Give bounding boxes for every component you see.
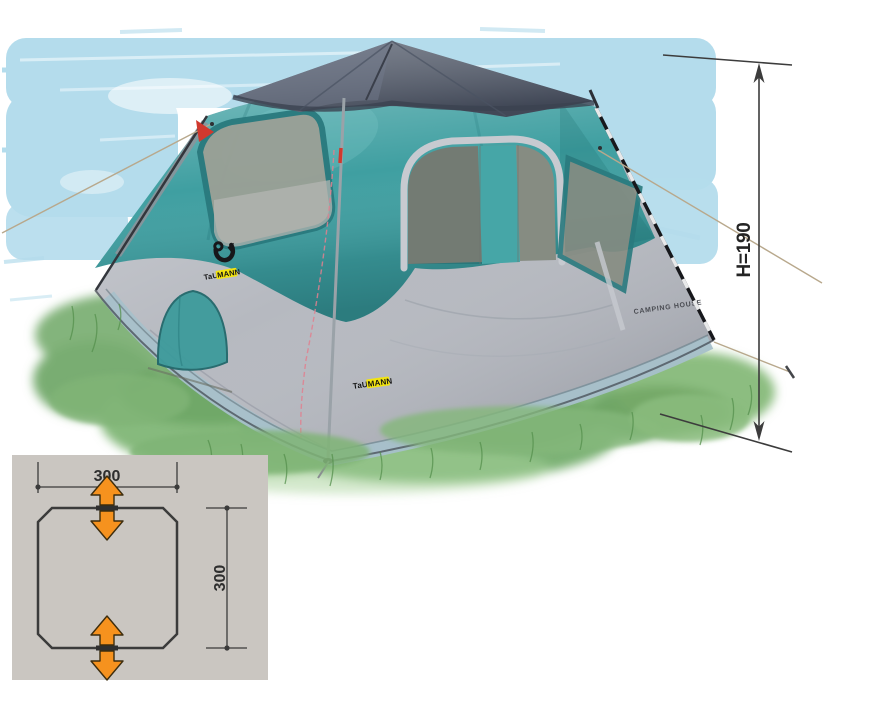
door-flap (478, 145, 520, 264)
height-label: H=190 (734, 222, 755, 277)
door (404, 139, 562, 268)
tent-product-figure: TaU MANN TaU MANN CAMPING HOUSE (0, 0, 875, 702)
depth-label: 300 (212, 565, 229, 592)
left-window (200, 112, 332, 247)
floor-plan: 300 300 (12, 455, 268, 680)
front-pole-marker (340, 148, 341, 163)
stake (786, 366, 794, 378)
